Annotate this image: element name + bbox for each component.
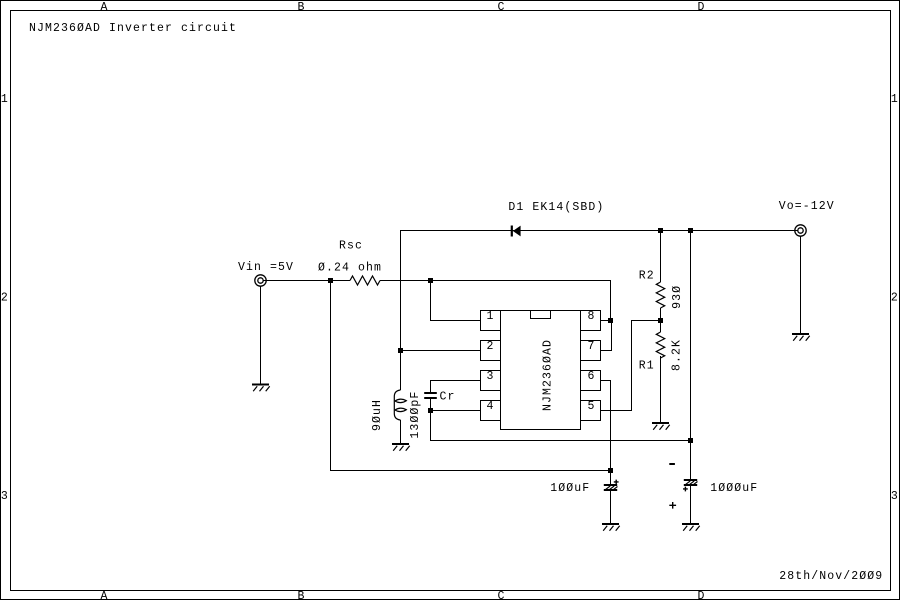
svg-text:9ØuH: 9ØuH — [371, 399, 384, 431]
svg-text:13ØØpF: 13ØØpF — [409, 391, 422, 439]
svg-text:2: 2 — [486, 340, 494, 353]
svg-text:6: 6 — [587, 370, 595, 383]
svg-text:D1 EK14(SBD): D1 EK14(SBD) — [508, 201, 604, 214]
svg-text:5: 5 — [587, 400, 595, 413]
svg-text:A: A — [100, 1, 108, 14]
svg-text:Ø.24 ohm: Ø.24 ohm — [318, 262, 382, 275]
svg-text:1ØØuF: 1ØØuF — [550, 482, 590, 495]
svg-text:C: C — [497, 1, 505, 14]
svg-text:NJM236ØAD Inverter circuit: NJM236ØAD Inverter circuit — [29, 22, 237, 35]
svg-text:A: A — [100, 590, 108, 600]
svg-text:8.2K: 8.2K — [670, 339, 683, 371]
svg-text:1: 1 — [1, 93, 9, 106]
svg-text:93Ø: 93Ø — [671, 285, 684, 309]
svg-text:2: 2 — [1, 291, 9, 304]
svg-text:3: 3 — [891, 490, 899, 503]
svg-text:D: D — [697, 1, 705, 14]
svg-text:B: B — [297, 590, 305, 600]
svg-text:C: C — [497, 590, 505, 600]
svg-text:Vin =5V: Vin =5V — [238, 261, 294, 274]
svg-text:4: 4 — [486, 400, 494, 413]
svg-text:7: 7 — [587, 340, 595, 353]
svg-text:28th/Nov/2ØØ9: 28th/Nov/2ØØ9 — [779, 570, 883, 583]
svg-text:NJM236ØAD: NJM236ØAD — [541, 339, 554, 411]
svg-text:B: B — [297, 1, 305, 14]
svg-text:R2: R2 — [639, 270, 655, 283]
svg-text:1ØØØuF: 1ØØØuF — [710, 482, 758, 495]
svg-text:3: 3 — [1, 490, 9, 503]
svg-text:D: D — [697, 590, 705, 600]
svg-text:8: 8 — [587, 310, 595, 323]
svg-text:R1: R1 — [639, 360, 655, 373]
svg-text:Rsc: Rsc — [339, 240, 363, 253]
svg-text:Cr: Cr — [440, 391, 456, 404]
svg-text:2: 2 — [891, 291, 899, 304]
svg-text:Vo=-12V: Vo=-12V — [779, 200, 835, 213]
svg-text:1: 1 — [486, 310, 494, 323]
svg-text:1: 1 — [891, 93, 899, 106]
svg-text:3: 3 — [486, 370, 494, 383]
